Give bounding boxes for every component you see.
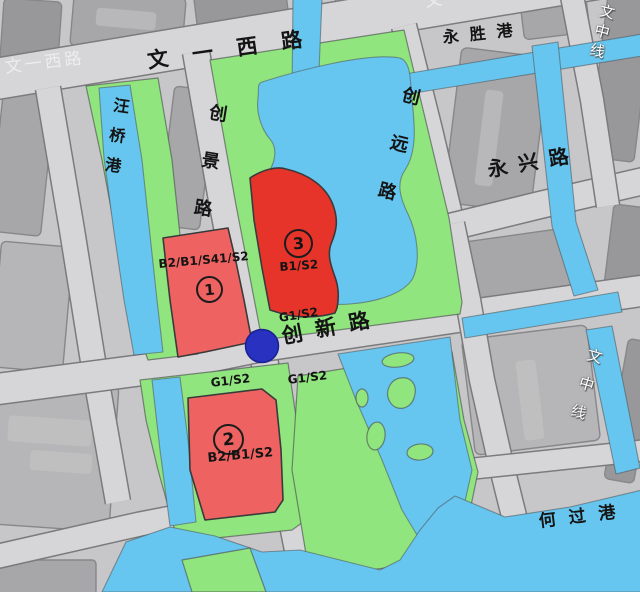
station-dot: [246, 330, 279, 363]
zone-3-code: B1/S2: [279, 258, 319, 273]
map-svg: [0, 0, 640, 592]
city-block: [0, 241, 73, 373]
map-canvas[interactable]: 文一西路 文一西路 文一西路 永胜港 文中线 文中线 汪桥港 创景路 创远路 永…: [0, 0, 640, 592]
river-island: [356, 389, 368, 407]
river-island: [388, 378, 416, 409]
